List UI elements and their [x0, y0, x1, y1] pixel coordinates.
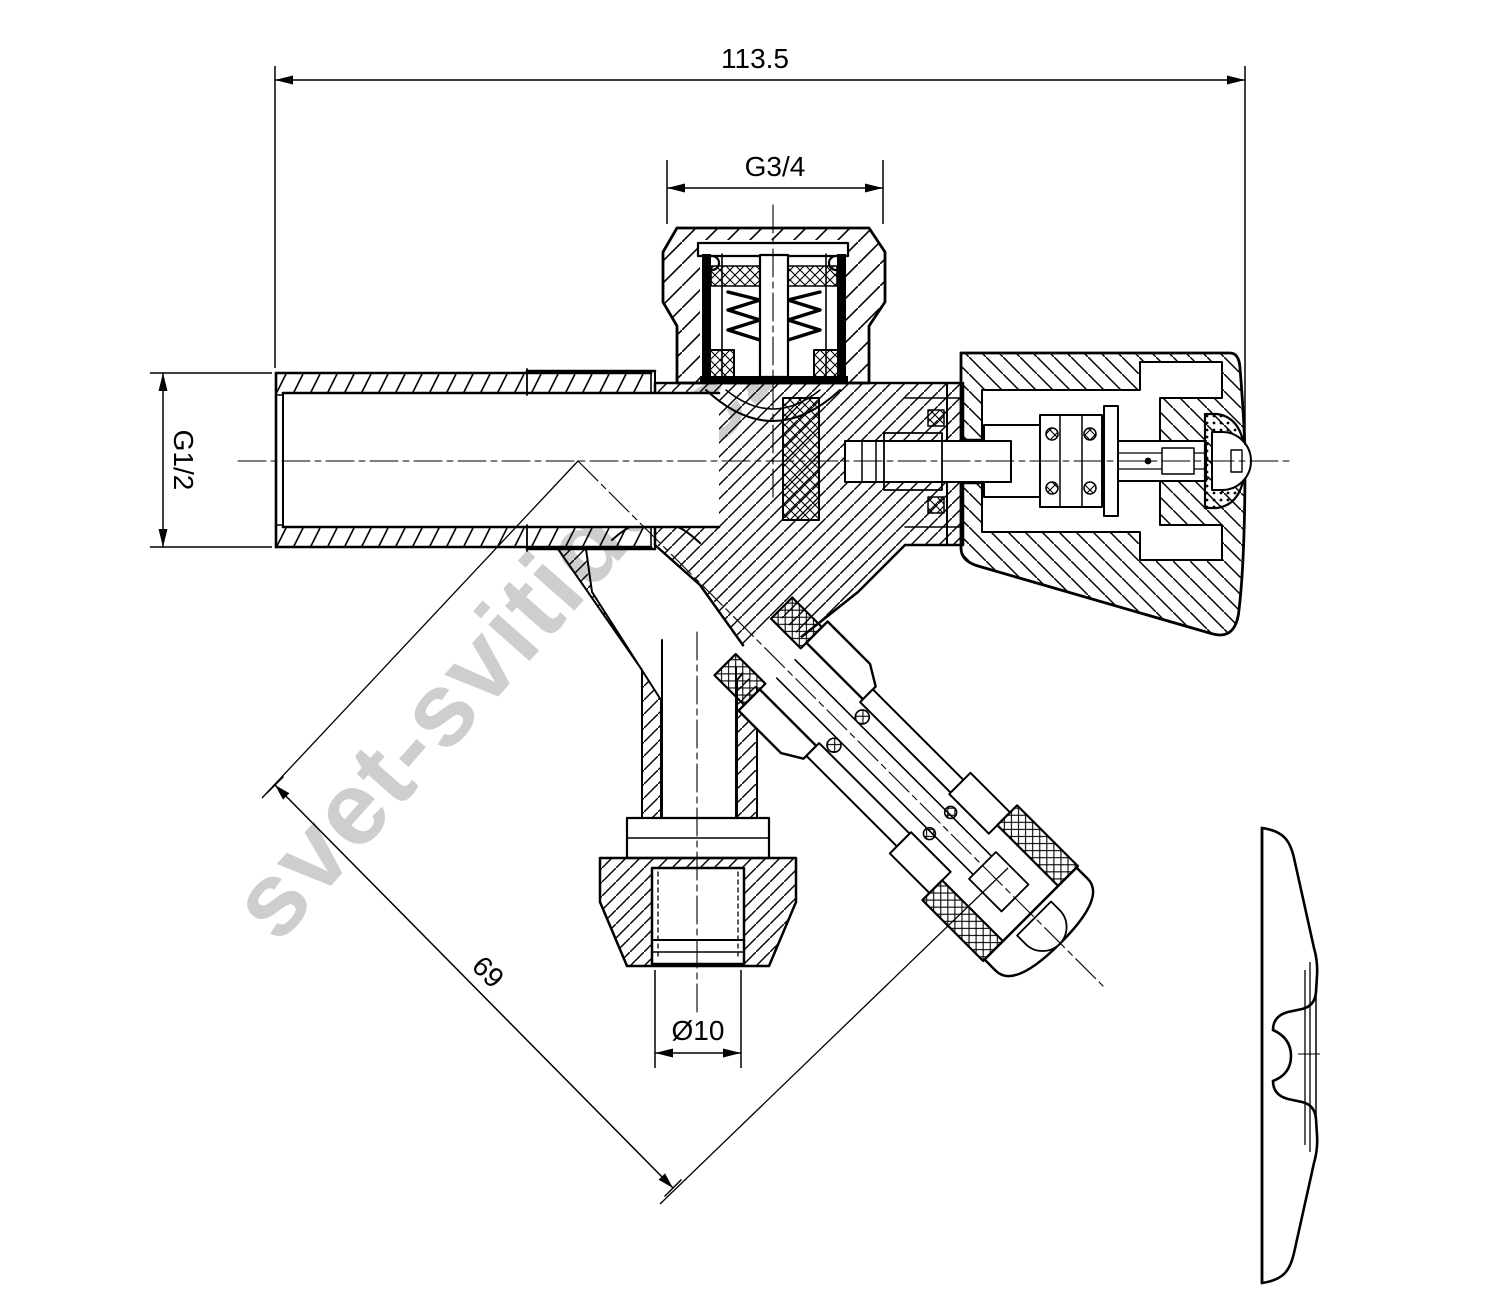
inlet-pipe [276, 369, 719, 551]
dim-label-top-connection: G3/4 [745, 151, 806, 182]
drawing-page: svet-svitidel.cz [0, 0, 1500, 1311]
valve-technical-drawing: svet-svitidel.cz [0, 0, 1500, 1311]
dim-label-outlet-diameter: Ø10 [672, 1015, 725, 1046]
dim-label-inlet-connection: G1/2 [168, 430, 199, 491]
dim-label-overall-width: 113.5 [721, 43, 789, 74]
